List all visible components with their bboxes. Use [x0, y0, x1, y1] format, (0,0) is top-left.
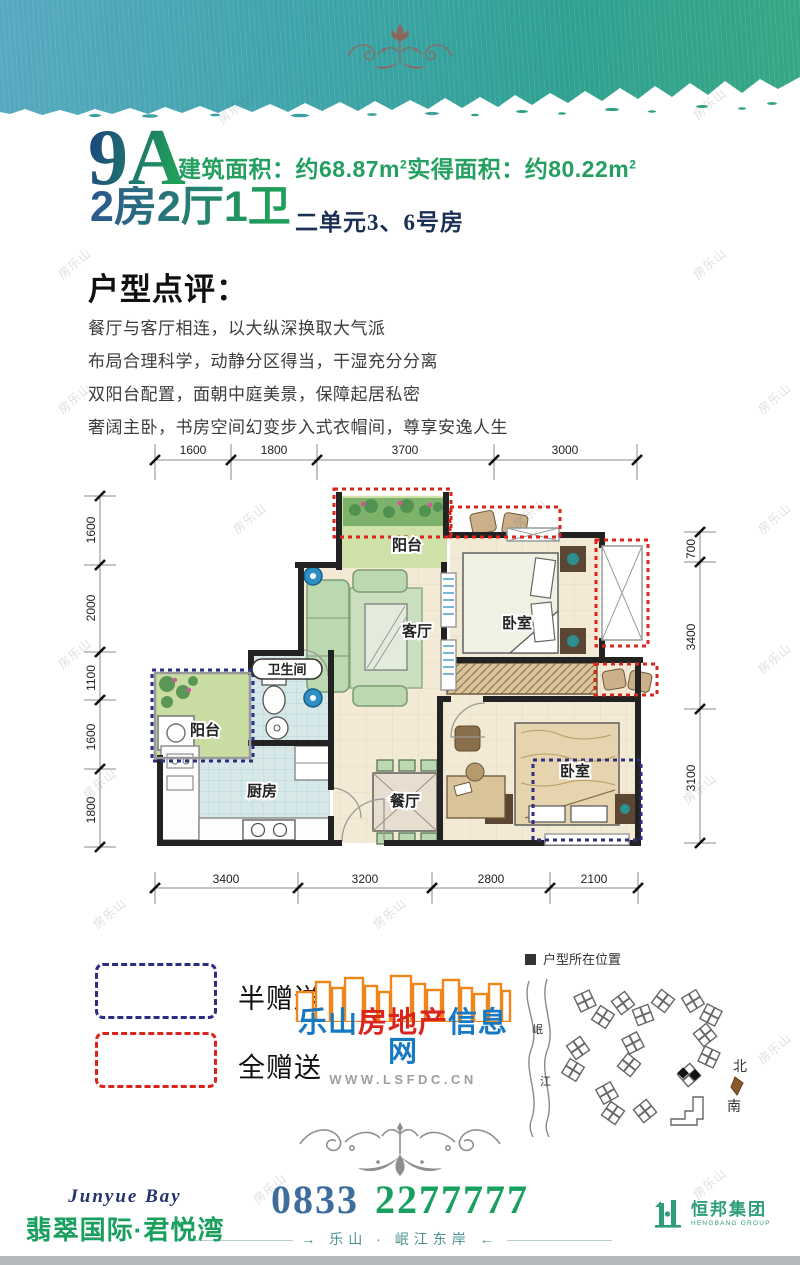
developer-logo: 恒邦集团 HENGBANG GROUP	[652, 1198, 771, 1230]
dim-left-2: 2000	[84, 594, 98, 621]
highlighted-building	[677, 1063, 702, 1088]
phone-part1: 0833	[271, 1177, 359, 1222]
built-area-label: 建筑面积：约	[178, 156, 319, 182]
room-label-bedroom-top: 卧室	[502, 614, 532, 632]
area-line: 建筑面积：约68.87m2实得面积：约80.22m2	[178, 150, 636, 184]
portal-name-part2: 房地产	[358, 1007, 448, 1039]
planter-top	[343, 498, 444, 526]
banner-torn-edge	[0, 71, 800, 119]
footer-divider-bar	[0, 1256, 800, 1265]
watermark: 房乐山	[754, 499, 795, 537]
actual-area-sup: 2	[629, 157, 636, 171]
layout-summary: 2房2厅1卫	[90, 186, 291, 229]
actual-area-label: 实得面积：约	[407, 156, 548, 182]
built-area-value: 68.87m	[319, 156, 400, 182]
compass-needle-icon	[731, 1077, 743, 1095]
dim-bottom-2: 3200	[352, 872, 379, 886]
dim-right-3: 3100	[684, 764, 698, 791]
bathroom-label: 卫生间	[252, 659, 322, 679]
legend-full-gift-swatch	[95, 1032, 217, 1088]
actual-area-value: 80.22m	[548, 156, 629, 182]
developer-name-en: HENGBANG GROUP	[691, 1220, 771, 1227]
map-title-bullet	[525, 954, 536, 965]
podium-building	[671, 1097, 703, 1125]
map-title: 户型所在位置	[543, 952, 621, 967]
tagline-arrow-right: ←	[480, 1231, 499, 1247]
tagline-arrow-left: →	[301, 1231, 320, 1247]
dim-top-4: 3000	[552, 443, 579, 457]
review-heading: 户型点评：	[88, 264, 248, 309]
project-logo: Junyue Bay 翡翠国际·君悦湾	[20, 1186, 230, 1247]
dim-right-1: 700	[684, 539, 698, 559]
dim-left-4: 1600	[84, 723, 98, 750]
portal-logo: 乐山房地产信息网 WWW.LSFDC.CN	[293, 974, 513, 1087]
review-line: 双阳台配置，面朝中庭美景，保障起居私密	[88, 378, 508, 411]
project-name-en: Junyue Bay	[20, 1186, 230, 1208]
tagline-text: 乐山 · 岷江东岸	[329, 1231, 470, 1247]
phone-part2: 2277777	[375, 1177, 529, 1222]
dim-left-1: 1600	[84, 516, 98, 543]
review-lines: 餐厅与客厅相连，以大纵深换取大气派 布局合理科学，动静分区得当，干湿充分分离 双…	[88, 312, 508, 444]
portal-name: 乐山房地产信息网	[293, 1009, 513, 1067]
watermark: 房乐山	[689, 244, 730, 282]
river	[527, 979, 550, 1137]
developer-name-cn: 恒邦集团	[691, 1201, 771, 1220]
bedroom-bottom-furniture	[447, 723, 636, 825]
compass-south: 南	[727, 1098, 741, 1114]
tagline-rule-right	[507, 1240, 612, 1241]
hengbang-mark-icon	[652, 1198, 684, 1230]
review-line: 餐厅与客厅相连，以大纵深换取大气派	[88, 312, 508, 345]
wardrobe	[447, 663, 597, 694]
river-char-1: 岷	[532, 1023, 543, 1036]
project-name-cn: 翡翠国际·君悦湾	[20, 1210, 230, 1247]
room-label-balcony-top: 阳台	[392, 536, 422, 554]
dim-top-2: 1800	[261, 443, 288, 457]
legend-half-gift-swatch	[95, 963, 217, 1019]
location-map: 户型所在位置 岷 江 北 南	[505, 943, 790, 1141]
river-char-2: 江	[540, 1075, 551, 1088]
watermark: 房乐山	[754, 379, 795, 417]
review-line: 布局合理科学，动静分区得当，干湿充分分离	[88, 345, 508, 378]
room-label-living: 客厅	[401, 622, 432, 640]
room-label-kitchen: 厨房	[247, 782, 277, 800]
portal-url: WWW.LSFDC.CN	[293, 1072, 513, 1087]
dim-bottom-4: 2100	[581, 872, 608, 886]
room-label-dining: 餐厅	[390, 792, 420, 810]
room-label-balcony-left: 阳台	[190, 721, 220, 739]
watermark: 房乐山	[754, 639, 795, 677]
dim-top-1: 1600	[180, 443, 207, 457]
footer-flourish-icon	[290, 1120, 510, 1178]
compass: 北 南	[727, 1058, 747, 1114]
banner-flourish-icon	[340, 20, 460, 72]
portal-name-part1: 乐山	[298, 1007, 358, 1039]
unit-rooms: 二单元3、6号房	[295, 203, 464, 237]
watercolor-banner	[0, 0, 800, 118]
compass-north: 北	[733, 1058, 747, 1074]
room-label-bathroom: 卫生间	[267, 662, 306, 677]
dim-bottom-3: 2800	[478, 872, 505, 886]
dim-top-3: 3700	[392, 443, 419, 457]
dim-bottom-1: 3400	[213, 872, 240, 886]
dim-left-3: 1100	[84, 665, 98, 691]
room-label-bedroom-bottom: 卧室	[560, 762, 590, 780]
dim-right-2: 3400	[684, 623, 698, 650]
dim-left-5: 1800	[84, 796, 98, 823]
floorplan: 阳台 客厅 卧室 阳台 厨房 餐厅 卧室 卫生间 1600 1800 3700 …	[55, 428, 755, 928]
